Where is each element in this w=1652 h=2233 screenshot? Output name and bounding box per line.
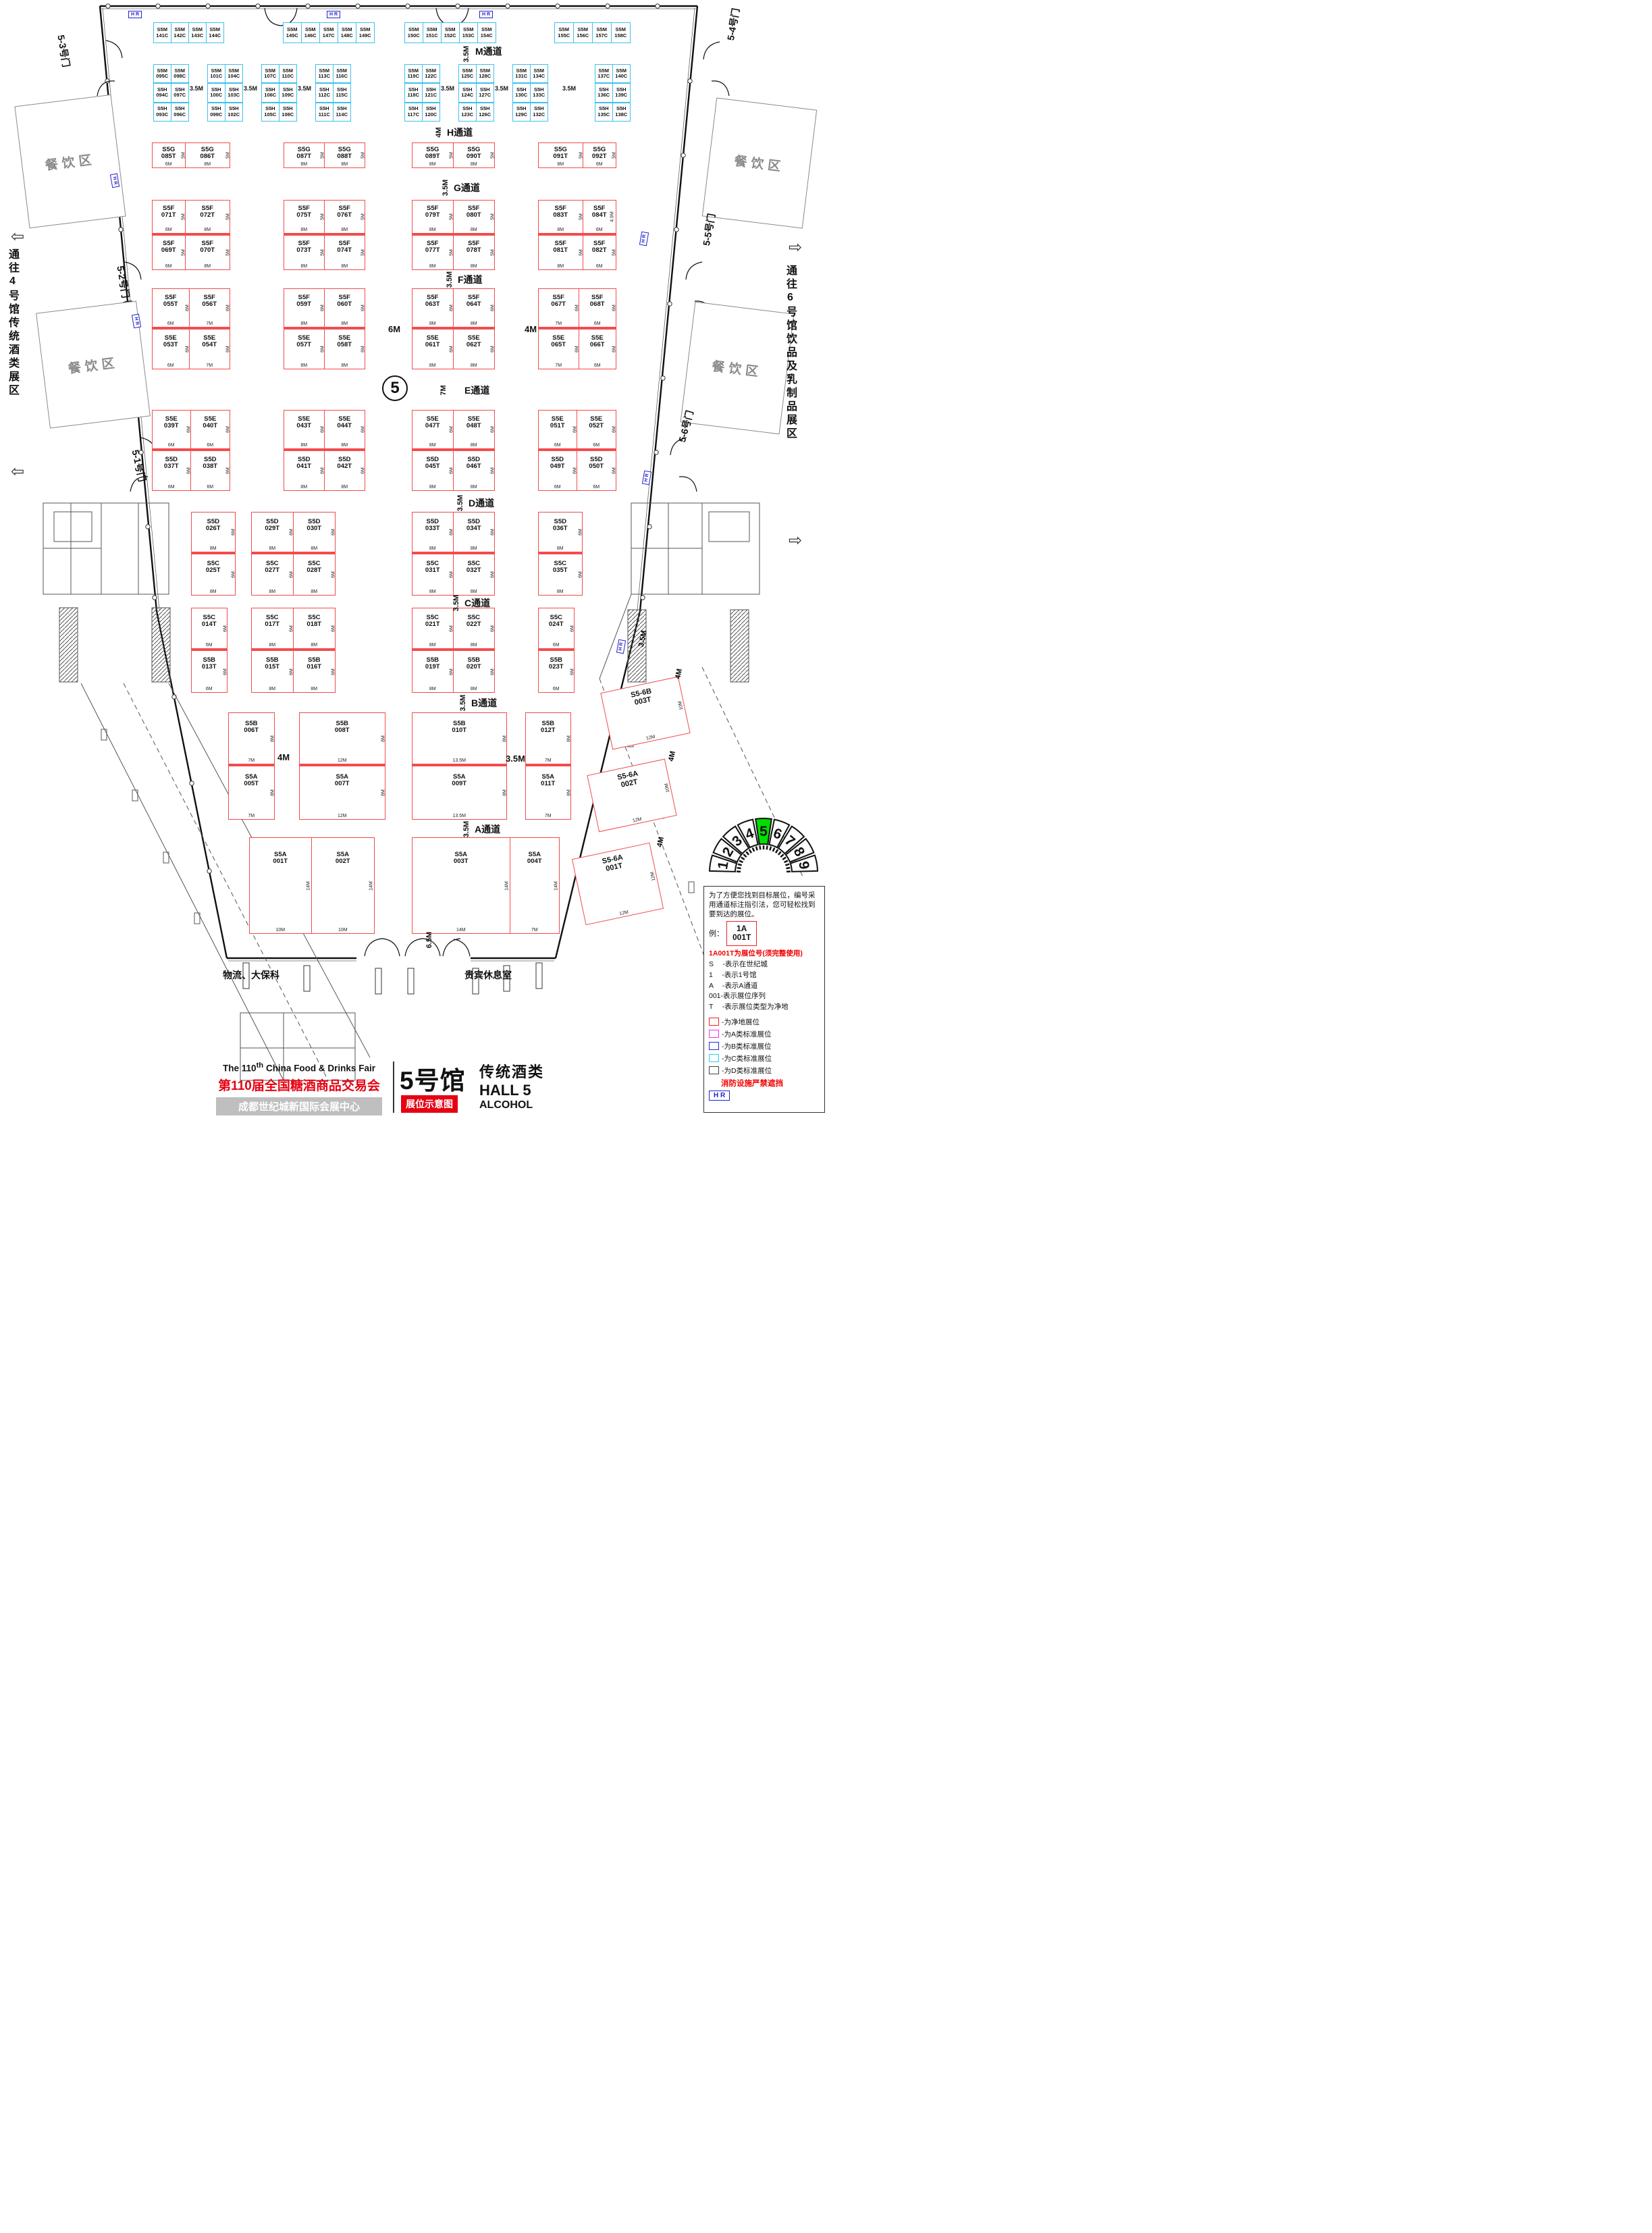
legend-class: -为C类标准展位 (709, 1053, 821, 1063)
width-label: 6M (583, 264, 616, 269)
booth-s5f-055t: S5F 055T6M6M (152, 288, 190, 329)
booth-id: S5F 056T (190, 289, 230, 309)
width-label: 8M (284, 228, 324, 232)
booth-id: S5M 134C (533, 68, 545, 80)
booth-s5d-029t: S5D 029T8M6M (251, 512, 294, 554)
booth-id: S5G 087T (284, 143, 324, 161)
legend-example-label: 例： (709, 928, 724, 939)
hr-marker: H R (327, 11, 340, 18)
width-label: 8M (539, 546, 582, 551)
width-label: 8M (325, 363, 365, 368)
height-label: 6M (225, 467, 230, 474)
width-label: 8M (284, 363, 324, 368)
booth-s5e-047t: S5E 047T8M6M (412, 410, 454, 450)
aisle-label-1: M通道 (475, 45, 502, 58)
width-label: 8M (412, 546, 453, 551)
booth-id: S5E 054T (190, 330, 230, 349)
aisle-dim-1: 3.5M (462, 43, 471, 65)
booth-id: S5D 036T (539, 513, 582, 533)
width-label: 8M (294, 687, 335, 691)
title-block: The 110th China Food & Drinks Fair 第110届… (211, 1060, 552, 1115)
height-label: 5M (225, 213, 230, 220)
booth-s5m-148c: S5M 148C (338, 22, 356, 43)
hall-category-cn: 传统酒类 (479, 1060, 544, 1082)
height-label: 5M (225, 152, 230, 159)
width-label: 12M (300, 758, 385, 763)
booth-id: S5H 094C (156, 87, 168, 99)
aisle-dim-7: 3.5M (452, 592, 460, 614)
booth-id: S5B 012T (526, 713, 570, 735)
aisle-dim-2: 4M (435, 121, 443, 144)
booth-s5g-086t: S5G 086T8M5M (185, 142, 230, 168)
booth-s5h-093c: S5H 093C (153, 103, 171, 122)
width-label: 8M (454, 687, 494, 691)
width-label: 6M (192, 687, 227, 691)
width-label: 7M (190, 363, 230, 368)
width-label: 6M (539, 485, 577, 490)
booth-id: S5E 053T (153, 330, 189, 349)
booth-id: S5M 095C (156, 68, 168, 80)
booth-id: S5M 131C (515, 68, 527, 80)
width-label: 8M (539, 162, 583, 167)
width-label: 8M (252, 589, 293, 594)
booth-s5c-021t: S5C 021T8M6M (412, 608, 454, 650)
height-label: 8M (270, 789, 275, 796)
height-label: 6M (361, 467, 365, 474)
booth-id: S5H 093C (156, 106, 168, 117)
booth-id: S5M 152C (444, 27, 456, 38)
arrow-left-icon: ⇦ (11, 227, 24, 246)
booth-s5d-034t: S5D 034T8M6M (453, 512, 495, 554)
aisle-label-4: F通道 (458, 273, 483, 286)
booth-id: S5H 117C (407, 106, 419, 117)
booth-s5g-089t: S5G 089T8M5M (412, 142, 454, 168)
height-label: 6M (231, 571, 236, 578)
note-to-hall4: 通往4号馆传统酒类展区 (4, 248, 20, 451)
height-label: 6M (223, 668, 228, 675)
booth-id: S5E 044T (325, 411, 365, 430)
selector-tick (738, 864, 742, 866)
booth-s5m-141c: S5M 141C (153, 22, 171, 43)
booth-id: S5E 040T (191, 411, 230, 430)
booth-s5a-001t: S5A 001T10M14M (249, 837, 312, 934)
width-label: 8M (412, 228, 453, 232)
booth-s5m-147c: S5M 147C (319, 22, 338, 43)
booth-s5m-142c: S5M 142C (171, 22, 189, 43)
width-label: 13.5M (412, 814, 506, 818)
height-label: 5M (361, 213, 365, 220)
dim-label: 3.5M (244, 85, 257, 92)
booth-s5e-053t: S5E 053T6M6M (152, 329, 190, 369)
booth-id: S5B 015T (252, 651, 293, 671)
booth-id: S5H 114C (336, 106, 348, 117)
booth-s5g-092t: S5G 092T6M5M (583, 142, 616, 168)
class-label: -为净地展位 (722, 1017, 760, 1027)
selector-tick (749, 849, 751, 853)
width-label: 8M (539, 228, 583, 232)
legend-headline: 1A001T为展位号(须完整使用) (709, 948, 821, 958)
width-label: 6M (539, 687, 574, 691)
booth-id: S5F 059T (284, 289, 324, 309)
booth-s5f-084t: S5F 084T6M4.9M (583, 200, 616, 235)
selector-tick (739, 860, 743, 862)
vip-room-label: 贵宾休息室 (464, 968, 512, 982)
width-label: 8M (294, 643, 335, 648)
booth-s5b-012t: S5B 012T7M8M (525, 712, 571, 766)
booth-id: S5C 028T (294, 554, 335, 575)
booth-s5h-108c: S5H 108C (279, 103, 297, 122)
booth-id: S5M 146C (304, 27, 317, 38)
booth-id: S5A 009T (412, 766, 506, 788)
width-label: 10M (250, 928, 311, 932)
booth-s5m-128c: S5M 128C (476, 64, 494, 83)
booth-s5m-149c: S5M 149C (356, 22, 375, 43)
width-label: 8M (252, 687, 293, 691)
booth-id: S5H 118C (407, 87, 419, 99)
booth-s5h-102c: S5H 102C (225, 103, 243, 122)
booth-id: S5H 099C (210, 106, 222, 117)
booth-s5e-052t: S5E 052T6M6M (577, 410, 616, 450)
booth-id: S5M 150C (408, 27, 420, 38)
booth-id: S5H 111C (319, 106, 330, 117)
booth-s5h-109c: S5H 109C (279, 83, 297, 102)
booth-s5d-030t: S5D 030T8M6M (293, 512, 336, 554)
booth-s5b-020t: S5B 020T8M6M (453, 650, 495, 693)
booth-s5c-027t: S5C 027T8M6M (251, 554, 294, 596)
booth-id: S5H 123C (461, 106, 473, 117)
selector-tick (784, 860, 788, 862)
booth-s5h-121c: S5H 121C (422, 83, 440, 102)
booth-s5m-122c: S5M 122C (422, 64, 440, 83)
booth-s5m-101c: S5M 101C (207, 64, 225, 83)
booth-id: S5D 034T (454, 513, 494, 533)
width-label: 6M (583, 162, 616, 167)
booth-id: S5M 125C (461, 68, 473, 80)
booth-s5c-014t: S5C 014T6M6M (191, 608, 228, 650)
booth-s5h-114c: S5H 114C (333, 103, 351, 122)
booth-id: S5H 105C (264, 106, 276, 117)
dim-label: 4M (525, 324, 537, 334)
booth-id: S5D 030T (294, 513, 335, 533)
booth-s5h-112c: S5H 112C (315, 83, 334, 102)
booth-s5a-003t: S5A 003T14M14M (412, 837, 510, 934)
height-label: 6M (231, 529, 236, 535)
booth-id: S5A 002T (312, 838, 374, 866)
width-label: 7M (510, 928, 559, 932)
legend-class: -为A类标准展位 (709, 1029, 821, 1039)
height-label: 10M (678, 700, 685, 710)
booth-id: S5C 032T (454, 554, 494, 575)
booth-id: S5F 071T (153, 201, 185, 219)
booth-s5m-144c: S5M 144C (206, 22, 224, 43)
booth-s5d-033t: S5D 033T8M6M (412, 512, 454, 554)
booth-id: S5F 068T (579, 289, 616, 309)
width-label: 6M (577, 443, 616, 448)
width-label: 6M (191, 443, 230, 448)
booth-s5a-011t: S5A 011T7M8M (525, 766, 571, 820)
height-label: 5M (612, 249, 616, 256)
legend-item: 001-表示展位序列 (709, 991, 821, 1002)
booth-s5d-049t: S5D 049T6M6M (538, 450, 577, 491)
booth-id: S5D 045T (412, 451, 453, 471)
selector-tick (785, 864, 789, 866)
booth-id: S5M 141C (156, 27, 168, 38)
booth-s5h-100c: S5H 100C (207, 83, 225, 102)
booth-s5h-094c: S5H 094C (153, 83, 171, 102)
width-label: 8M (412, 589, 453, 594)
booth-s5m-095c: S5M 095C (153, 64, 171, 83)
width-label: 8M (186, 228, 230, 232)
logistics-room-label: 物流、大保科 (223, 968, 279, 982)
hall-selector-map: 123456789 (701, 802, 826, 881)
booth-id: S5M 116C (336, 68, 348, 80)
booth-s5d-038t: S5D 038T6M6M (190, 450, 230, 491)
width-label: 8M (412, 443, 453, 448)
booth-s5h-139c: S5H 139C (612, 83, 631, 102)
booth-id: S5H 102C (228, 106, 240, 117)
booth-id: S5H 139C (615, 87, 627, 99)
booth-id: S5A 007T (300, 766, 385, 788)
height-label: 6M (490, 426, 495, 433)
width-label: 6M (583, 228, 616, 232)
height-label: 6M (612, 426, 616, 433)
booth-id: S5A 001T (250, 838, 311, 866)
width-label: 6M (539, 643, 574, 648)
booth-id: S5H 126C (479, 106, 491, 117)
booth-s5f-064t: S5F 064T8M6M (453, 288, 495, 329)
booth-id: S5H 108C (282, 106, 294, 117)
booth-id: S5H 106C (264, 87, 276, 99)
height-label: 6M (331, 529, 336, 535)
dim-label: 3.5M (506, 754, 525, 764)
booth-s5m-151c: S5M 151C (423, 22, 442, 43)
booth-s5m-110c: S5M 110C (279, 64, 297, 83)
dim-label: 3.5M (441, 85, 454, 92)
booth-id: S5A 003T (412, 838, 510, 866)
booth-id: S5H 130C (515, 87, 527, 99)
booth-s5m-156c: S5M 156C (573, 22, 593, 43)
width-label: 8M (539, 264, 583, 269)
hall-name-en: HALL 5 (479, 1082, 544, 1099)
booth-s5e-065t: S5E 065T7M6M (538, 329, 579, 369)
height-label: 6M (490, 467, 495, 474)
booth-s5h-126c: S5H 126C (476, 103, 494, 122)
booth-id: S5E 052T (577, 411, 616, 430)
width-label: 8M (186, 162, 230, 167)
dim-label: 4M (277, 752, 290, 762)
booth-s5f-077t: S5F 077T8M5M (412, 235, 454, 270)
booth-s5f-068t: S5F 068T6M6M (579, 288, 616, 329)
selector-tick (778, 851, 781, 855)
booth-id: S5B 016T (294, 651, 335, 671)
aisle-label-6: D通道 (469, 496, 494, 510)
booth-s5f-083t: S5F 083T8M5M (538, 200, 583, 235)
booth-s5c-032t: S5C 032T8M6M (453, 554, 495, 596)
booth-id: S5H 103C (228, 87, 240, 99)
booth-id: S5H 138C (615, 106, 627, 117)
booth-id: S5M 143C (191, 27, 203, 38)
aisle-dim-5: 7M (439, 379, 448, 402)
booth-s5h-103c: S5H 103C (225, 83, 243, 102)
booth-id: S5F 083T (539, 201, 583, 219)
booth-id: S5M 119C (407, 68, 419, 80)
booth-s5h-099c: S5H 099C (207, 103, 225, 122)
dim-label: 6.5M (425, 928, 433, 951)
booth-id: S5D 050T (577, 451, 616, 471)
booth-s5b-010t: S5B 010T13.5M8M (412, 712, 507, 766)
width-label: 6M (191, 485, 230, 490)
booth-id: S5M 153C (462, 27, 475, 38)
booth-s5m-137c: S5M 137C (595, 64, 613, 83)
hr-marker: H R (479, 11, 493, 18)
width-label: 6M (153, 443, 190, 448)
booth-s5c-028t: S5C 028T8M6M (293, 554, 336, 596)
height-label: 5M (225, 249, 230, 256)
height-label: 6M (490, 571, 495, 578)
booth-s5m-158c: S5M 158C (611, 22, 631, 43)
booth-id: S5F 081T (539, 236, 583, 255)
booth-id: S5C 014T (192, 608, 227, 629)
booth-id: S5B 013T (192, 651, 227, 671)
booth-id: S5H 136C (597, 87, 610, 99)
booth-s5b-015t: S5B 015T8M6M (251, 650, 294, 693)
booth-id: S5E 047T (412, 411, 453, 430)
booth-id: S5M 145C (286, 27, 298, 38)
booth-id: S5M 104C (228, 68, 240, 80)
height-label: 6M (490, 668, 495, 675)
booth-id: S5M 110C (282, 68, 294, 80)
selector-tick (746, 851, 749, 855)
height-label: 6M (490, 346, 495, 352)
hall-category-en: ALCOHOL (479, 1099, 544, 1111)
height-label: 6M (225, 426, 230, 433)
width-label: 6M (153, 162, 185, 167)
booth-s5c-018t: S5C 018T8M6M (293, 608, 336, 650)
hall-number-circle: 5 (382, 375, 408, 401)
width-label: 8M (412, 321, 453, 326)
width-label: 6M (153, 363, 189, 368)
booth-s5f-069t: S5F 069T6M5M (152, 235, 186, 270)
width-label: 8M (294, 589, 335, 594)
fire-warning: 消防设施严禁遮挡 (721, 1078, 821, 1088)
legend-item: 1 -表示1号馆 (709, 970, 821, 981)
dim-label: 3.5M (495, 85, 508, 92)
booth-id: S5M 149C (359, 27, 371, 38)
booth-s5e-044t: S5E 044T8M6M (324, 410, 365, 450)
booth-id: S5E 058T (325, 330, 365, 349)
booth-s5e-040t: S5E 040T6M6M (190, 410, 230, 450)
booth-id: S5H 115C (336, 87, 348, 99)
class-swatch (709, 1042, 719, 1050)
aisle-label-3: G通道 (454, 181, 480, 194)
booth-id: S5G 092T (583, 143, 616, 161)
booth-s5d-026t: S5D 026T8M6M (191, 512, 236, 554)
booth-s5h-127c: S5H 127C (476, 83, 494, 102)
booth-id: S5D 029T (252, 513, 293, 533)
aisle-label-9: A通道 (475, 822, 500, 836)
height-label: 6M (361, 426, 365, 433)
booth-s5h-135c: S5H 135C (595, 103, 613, 122)
aisle-dim-4: 3.5M (446, 268, 454, 291)
aisle-label-2: H通道 (447, 126, 473, 139)
height-label: 6M (612, 305, 616, 311)
booth-s5h-106c: S5H 106C (261, 83, 279, 102)
dim-label: 3.5M (298, 85, 311, 92)
booth-s5f-060t: S5F 060T8M6M (324, 288, 365, 329)
booth-id: S5M 147C (323, 27, 335, 38)
width-label: 6M (577, 485, 616, 490)
width-label: 8M (284, 485, 324, 490)
booth-s5m-152c: S5M 152C (441, 22, 460, 43)
booth-id: S5M 157C (595, 27, 608, 38)
booth-s5m-154c: S5M 154C (477, 22, 496, 43)
booth-s5h-138c: S5H 138C (612, 103, 631, 122)
height-label: 6M (361, 305, 365, 311)
width-label: 8M (252, 643, 293, 648)
booth-id: S5C 025T (192, 554, 235, 575)
width-label: 8M (454, 643, 494, 648)
booth-id: S5M 107C (264, 68, 276, 80)
legend-example-booth: 1A 001T (726, 921, 757, 947)
dim-label: 6M (388, 324, 400, 334)
height-label: 6M (490, 529, 495, 535)
selector-tick (753, 847, 754, 851)
booth-s5h-130c: S5H 130C (512, 83, 531, 102)
booth-s5d-045t: S5D 045T8M6M (412, 450, 454, 491)
width-label: 8M (186, 264, 230, 269)
booth-s5m-153c: S5M 153C (459, 22, 478, 43)
booth-id: S5H 121C (425, 87, 437, 99)
booth-s5b-019t: S5B 019T8M6M (412, 650, 454, 693)
booth-id: S5C 024T (539, 608, 574, 629)
booth-id: S5B 010T (412, 713, 506, 735)
booth-s5m-143c: S5M 143C (188, 22, 207, 43)
booth-s5f-067t: S5F 067T7M6M (538, 288, 579, 329)
booth-id: S5D 046T (454, 451, 494, 471)
class-label: -为B类标准展位 (722, 1041, 772, 1051)
booth-id: S5M 142C (174, 27, 186, 38)
height-label: 8M (270, 735, 275, 742)
booth-id: S5F 075T (284, 201, 324, 219)
booth-id: S5C 035T (539, 554, 582, 575)
booth-id: S5C 017T (252, 608, 293, 629)
booth-s5b-008t: S5B 008T12M8M (299, 712, 385, 766)
width-label: 10M (312, 928, 374, 932)
selector-tick (782, 858, 786, 860)
booth-id: S5H 120C (425, 106, 437, 117)
width-label: 8M (252, 546, 293, 551)
width-label: 6M (153, 485, 190, 490)
booth-id: S5M 098C (174, 68, 186, 80)
width-label: 8M (284, 443, 324, 448)
booth-id: S5F 067T (539, 289, 579, 309)
width-label: 8M (454, 264, 494, 269)
legend-class: -为净地展位 (709, 1017, 821, 1027)
width-label: 8M (454, 546, 494, 551)
booth-s5m-113c: S5M 113C (315, 64, 334, 83)
booth-s5m-140c: S5M 140C (612, 64, 631, 83)
booth-s5g-088t: S5G 088T8M5M (324, 142, 365, 168)
width-label: 8M (284, 162, 324, 167)
booth-id: S5M 151C (426, 27, 438, 38)
booth-id: S5M 144C (209, 27, 221, 38)
booth-s5d-037t: S5D 037T6M6M (152, 450, 191, 491)
selector-tick (773, 847, 774, 851)
booth-id: S5D 038T (191, 451, 230, 471)
class-label: -为C类标准展位 (722, 1053, 772, 1063)
booth-s5h-129c: S5H 129C (512, 103, 531, 122)
plan-badge: 展位示意图 (401, 1095, 458, 1113)
